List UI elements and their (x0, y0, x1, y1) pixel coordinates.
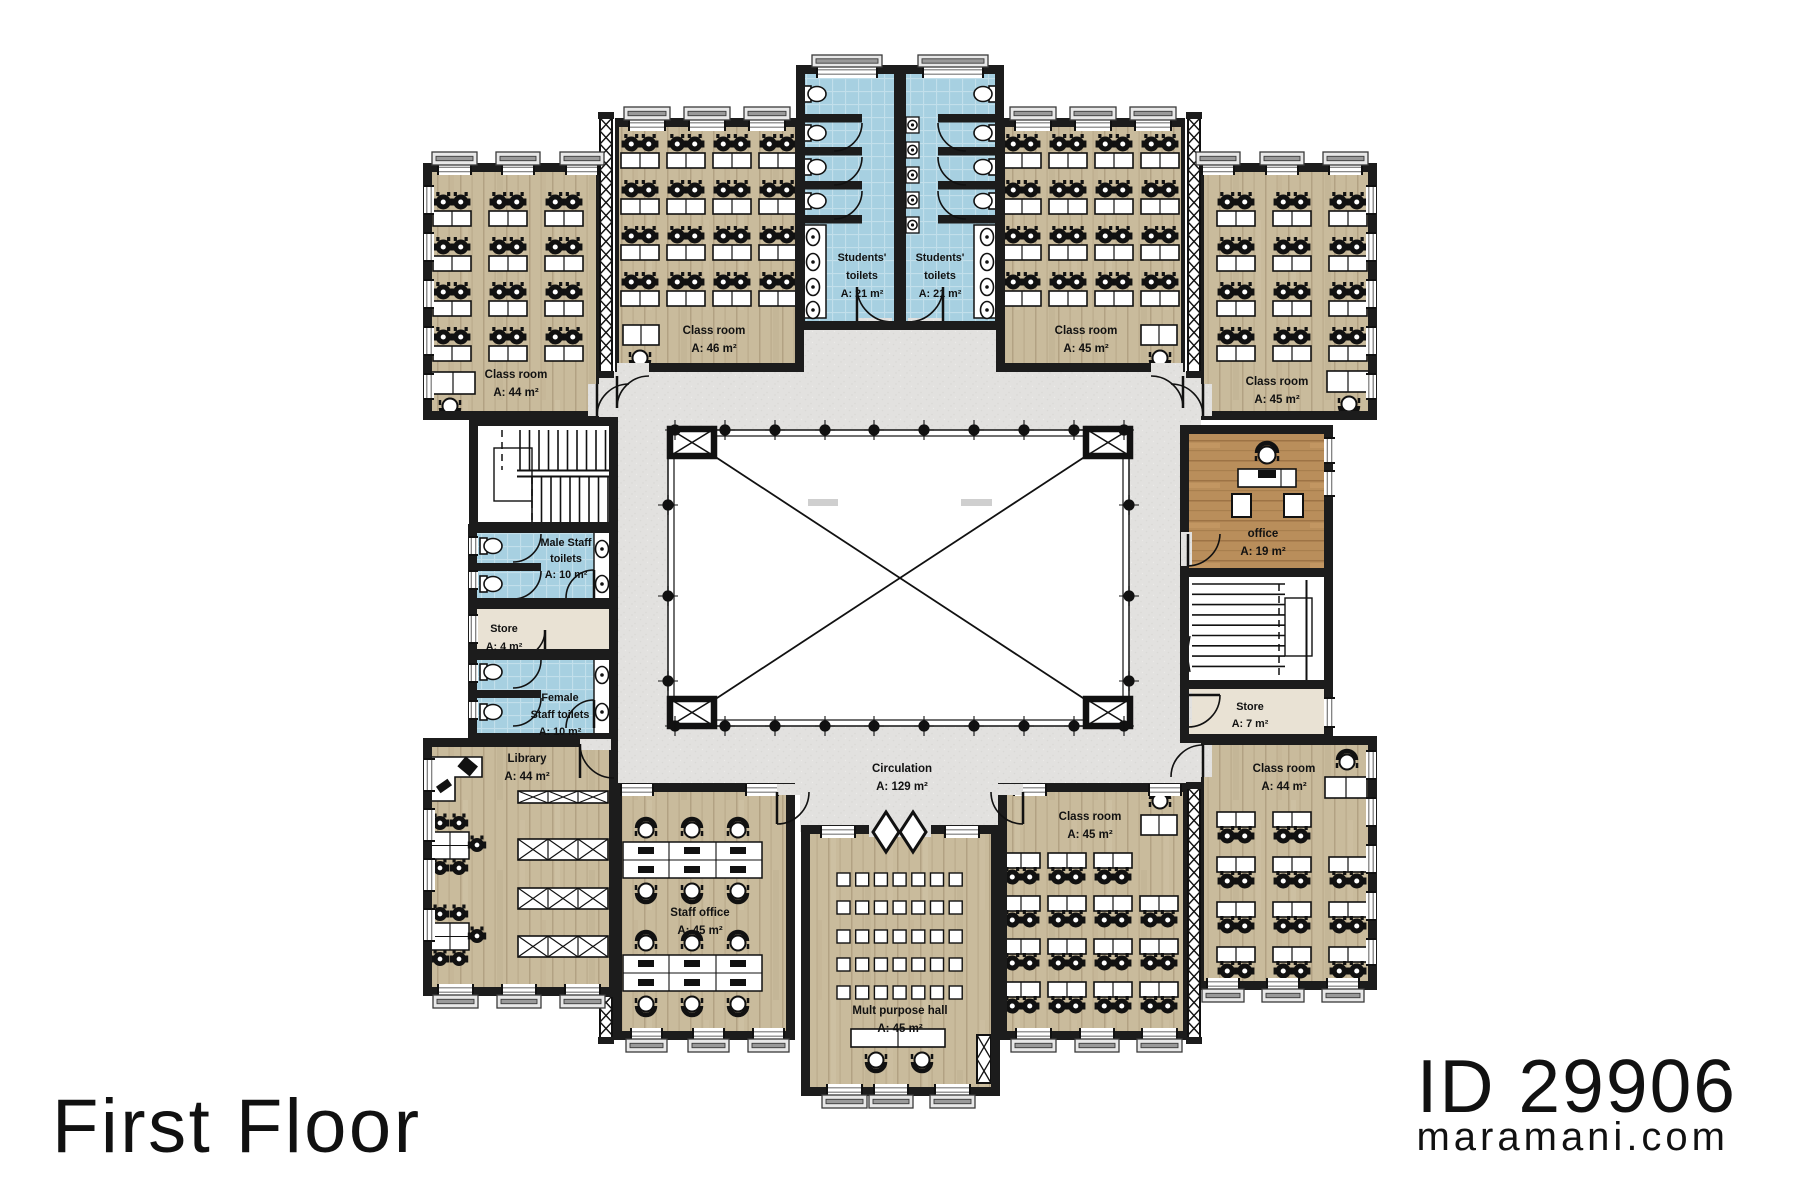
svg-text:toilets: toilets (924, 270, 956, 282)
svg-text:A: 45 m²: A: 45 m² (677, 925, 723, 937)
svg-text:Staff office: Staff office (670, 907, 729, 919)
svg-text:A: 45 m²: A: 45 m² (1063, 343, 1109, 355)
svg-text:Class room: Class room (1253, 763, 1316, 775)
svg-text:Library: Library (508, 753, 548, 765)
svg-text:A: 19 m²: A: 19 m² (1240, 546, 1286, 558)
svg-text:maramani.com: maramani.com (1416, 1115, 1729, 1159)
svg-text:A: 7 m²: A: 7 m² (1232, 718, 1269, 730)
svg-text:Class room: Class room (1055, 325, 1118, 337)
svg-text:A: 45 m²: A: 45 m² (1067, 829, 1113, 841)
svg-text:Circulation: Circulation (872, 763, 932, 775)
svg-text:Class room: Class room (683, 325, 746, 337)
svg-text:A: 44 m²: A: 44 m² (504, 771, 550, 783)
svg-text:A: 44 m²: A: 44 m² (493, 387, 539, 399)
svg-text:A: 10 m²: A: 10 m² (539, 726, 582, 738)
svg-text:toilets: toilets (550, 553, 582, 565)
svg-text:A: 45 m²: A: 45 m² (877, 1023, 923, 1035)
svg-text:office: office (1248, 528, 1279, 540)
svg-text:First Floor: First Floor (52, 1084, 422, 1169)
svg-text:A: 129 m²: A: 129 m² (876, 781, 928, 793)
svg-text:A: 10 m²: A: 10 m² (545, 569, 588, 581)
svg-text:Male Staff: Male Staff (541, 537, 592, 549)
svg-text:A: 46 m²: A: 46 m² (691, 343, 737, 355)
svg-text:A: 21 m²: A: 21 m² (919, 288, 962, 300)
svg-text:A: 45 m²: A: 45 m² (1254, 394, 1300, 406)
svg-text:Class room: Class room (1059, 811, 1122, 823)
svg-text:Class room: Class room (1246, 376, 1309, 388)
svg-text:Students': Students' (916, 252, 965, 264)
svg-text:A: 21 m²: A: 21 m² (841, 288, 884, 300)
svg-text:Female: Female (541, 692, 578, 704)
svg-text:Class room: Class room (485, 369, 548, 381)
svg-text:Store: Store (490, 623, 518, 635)
svg-text:A: 44 m²: A: 44 m² (1261, 781, 1307, 793)
svg-text:Store: Store (1236, 701, 1264, 713)
svg-text:Staff toilets: Staff toilets (531, 709, 590, 721)
svg-text:Mult purpose hall: Mult purpose hall (852, 1005, 947, 1017)
svg-text:toilets: toilets (846, 270, 878, 282)
svg-text:Students': Students' (838, 252, 887, 264)
